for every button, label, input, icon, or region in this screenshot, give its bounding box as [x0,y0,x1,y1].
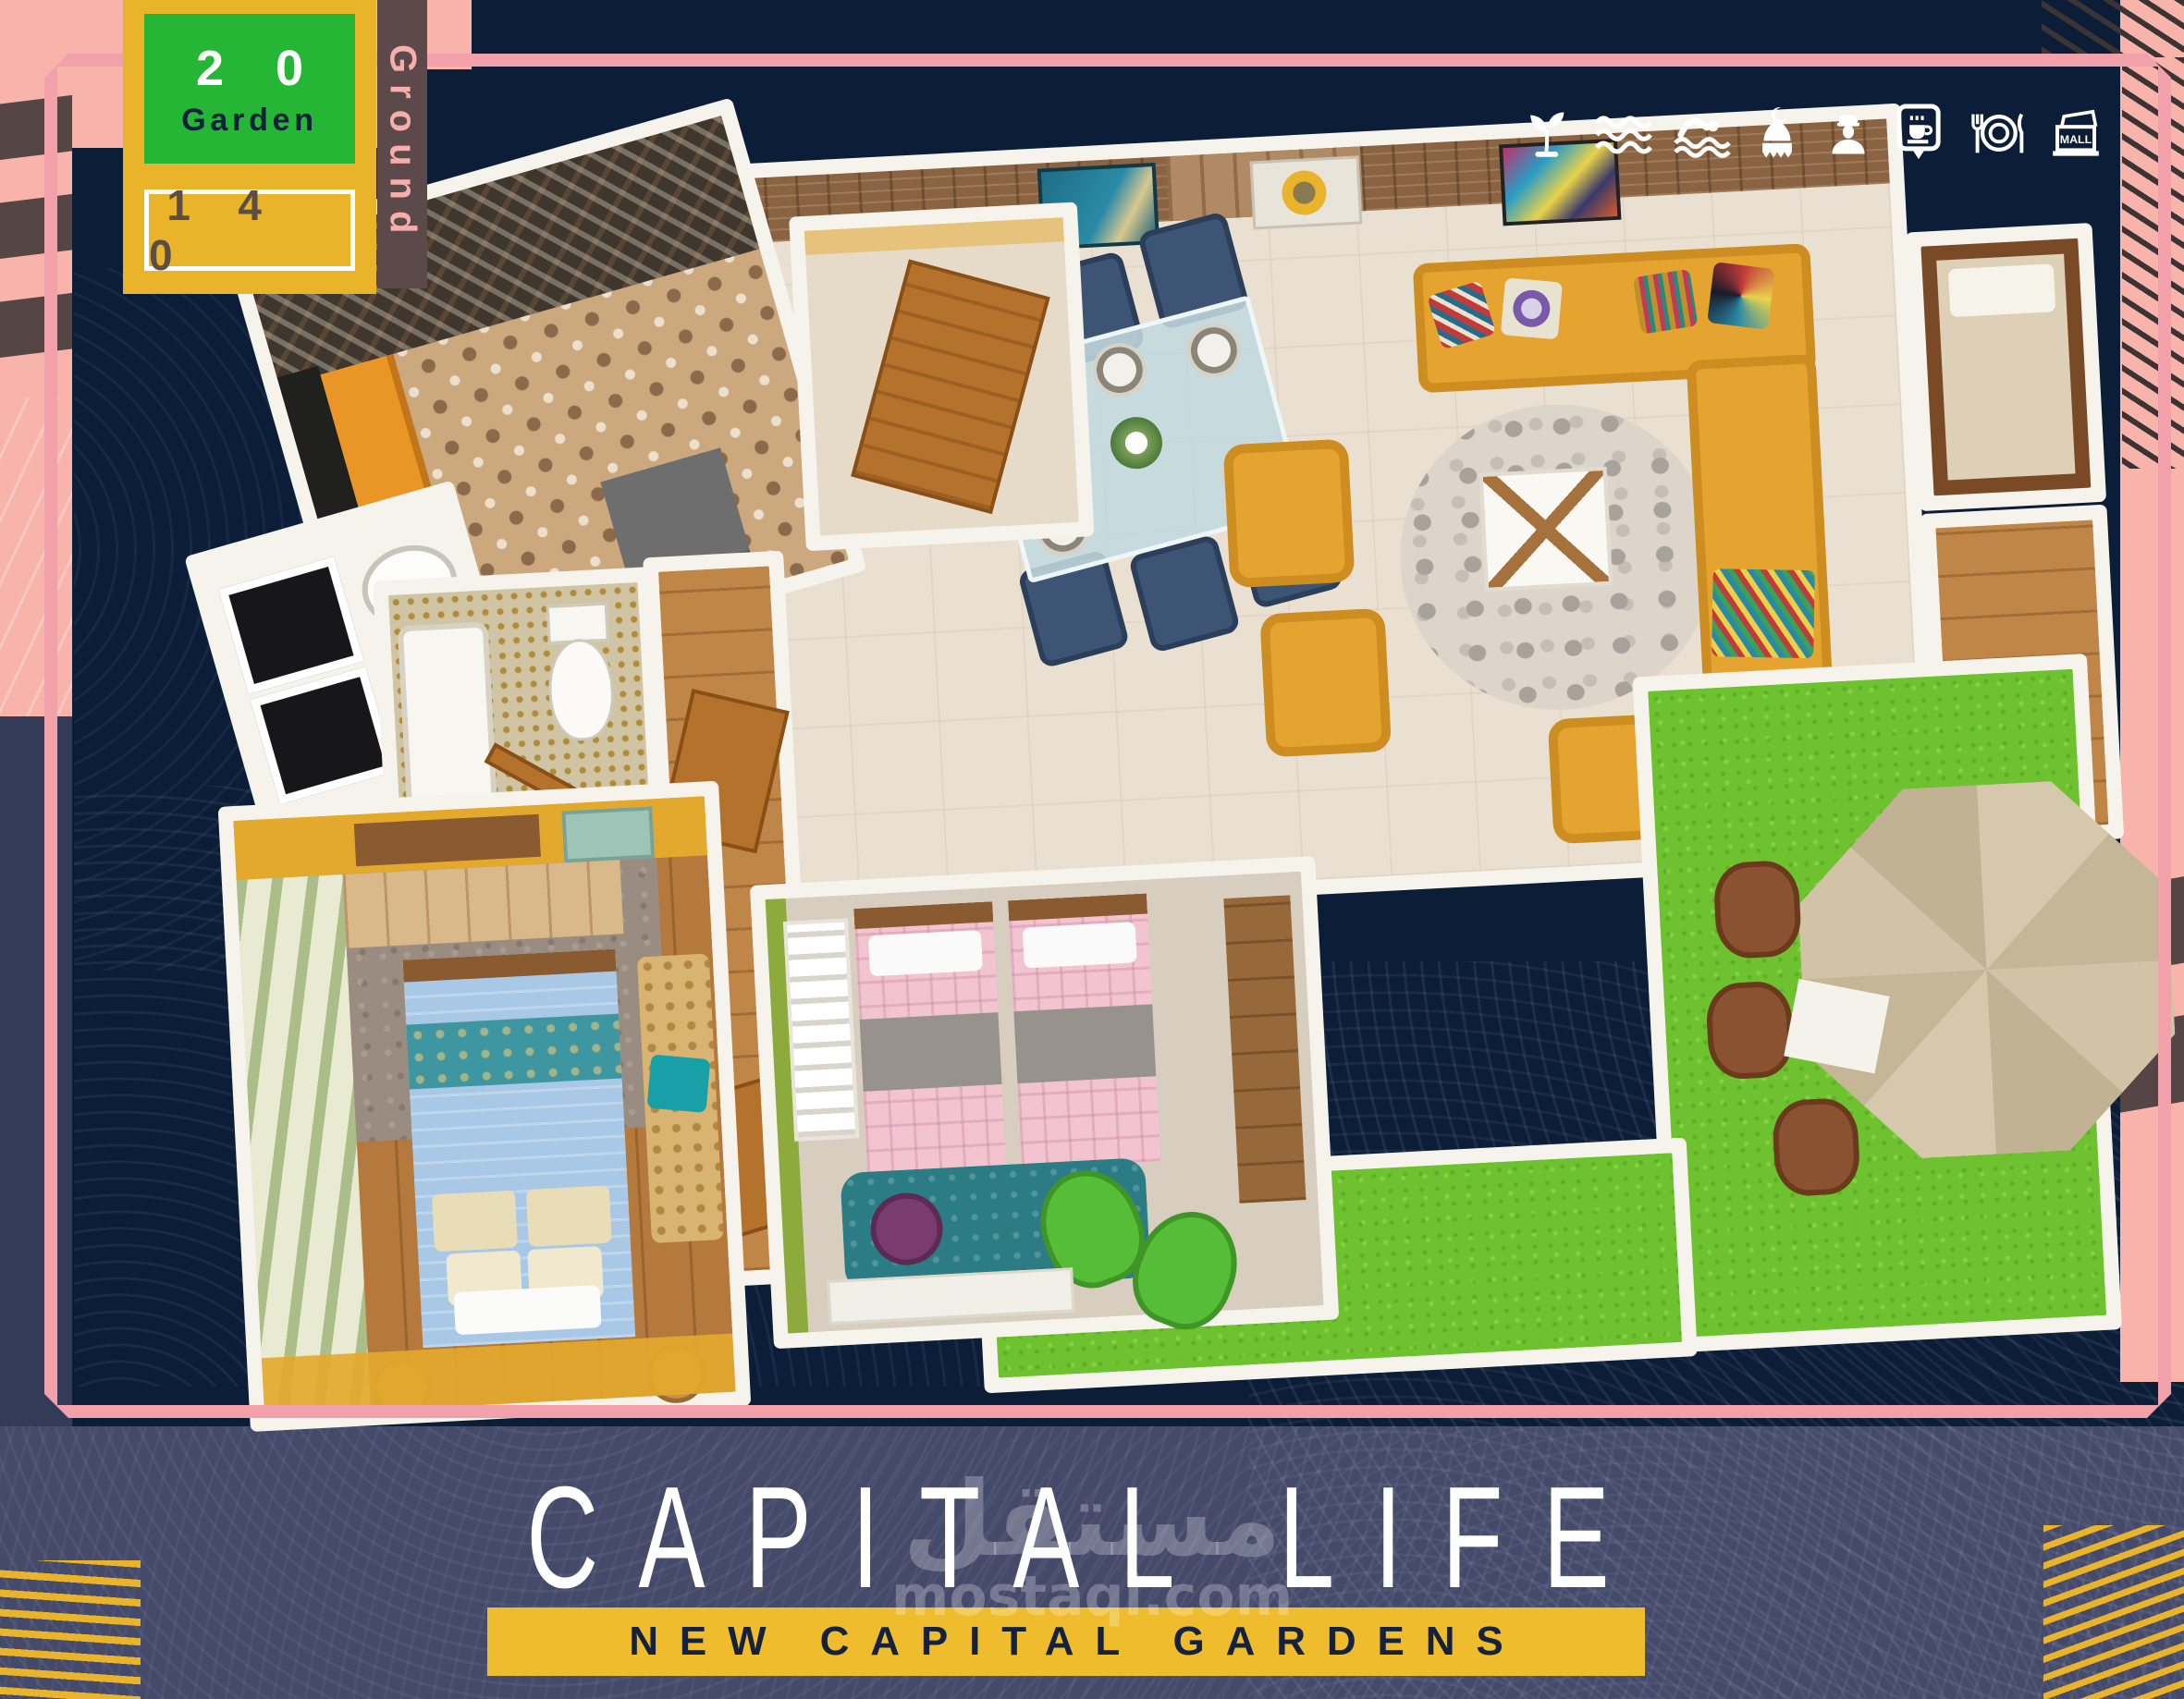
cafe-sign-icon [1894,103,1944,164]
unit-badge: 2 0 Garden 1 4 0 [123,0,376,294]
plant-icon [1521,104,1575,162]
bottom-right-yellow-stripes [2043,1525,2184,1699]
bottom-left-yellow-stripes [0,1560,141,1699]
security-guard-icon [1823,104,1873,162]
mall-icon-label: MALL [2060,133,2092,146]
mall-icon: MALL [2046,105,2105,161]
project-subtitle: NEW CAPITAL GARDENS [607,1619,1524,1665]
mosque-icon [1751,104,1803,162]
project-title: CAPITAL LIFE [398,1453,1738,1620]
waves-icon [1595,106,1652,160]
swimmer-icon [1674,106,1731,160]
unit-badge-green: 2 0 Garden [144,14,355,164]
unit-area: 1 4 0 [144,189,355,271]
amenities-row: MALL [1521,87,2105,179]
unit-type-label: Garden [181,103,318,139]
floor-plan-poster: 2 0 Garden 1 4 0 Ground [0,0,2184,1699]
restaurant-icon [1965,106,2026,160]
unit-number: 2 0 [177,40,322,97]
project-subtitle-banner: NEW CAPITAL GARDENS [487,1607,1645,1676]
top-right-stripes [2042,0,2184,57]
floor-label-strip: Ground [377,0,427,288]
floor-label: Ground [382,44,423,244]
